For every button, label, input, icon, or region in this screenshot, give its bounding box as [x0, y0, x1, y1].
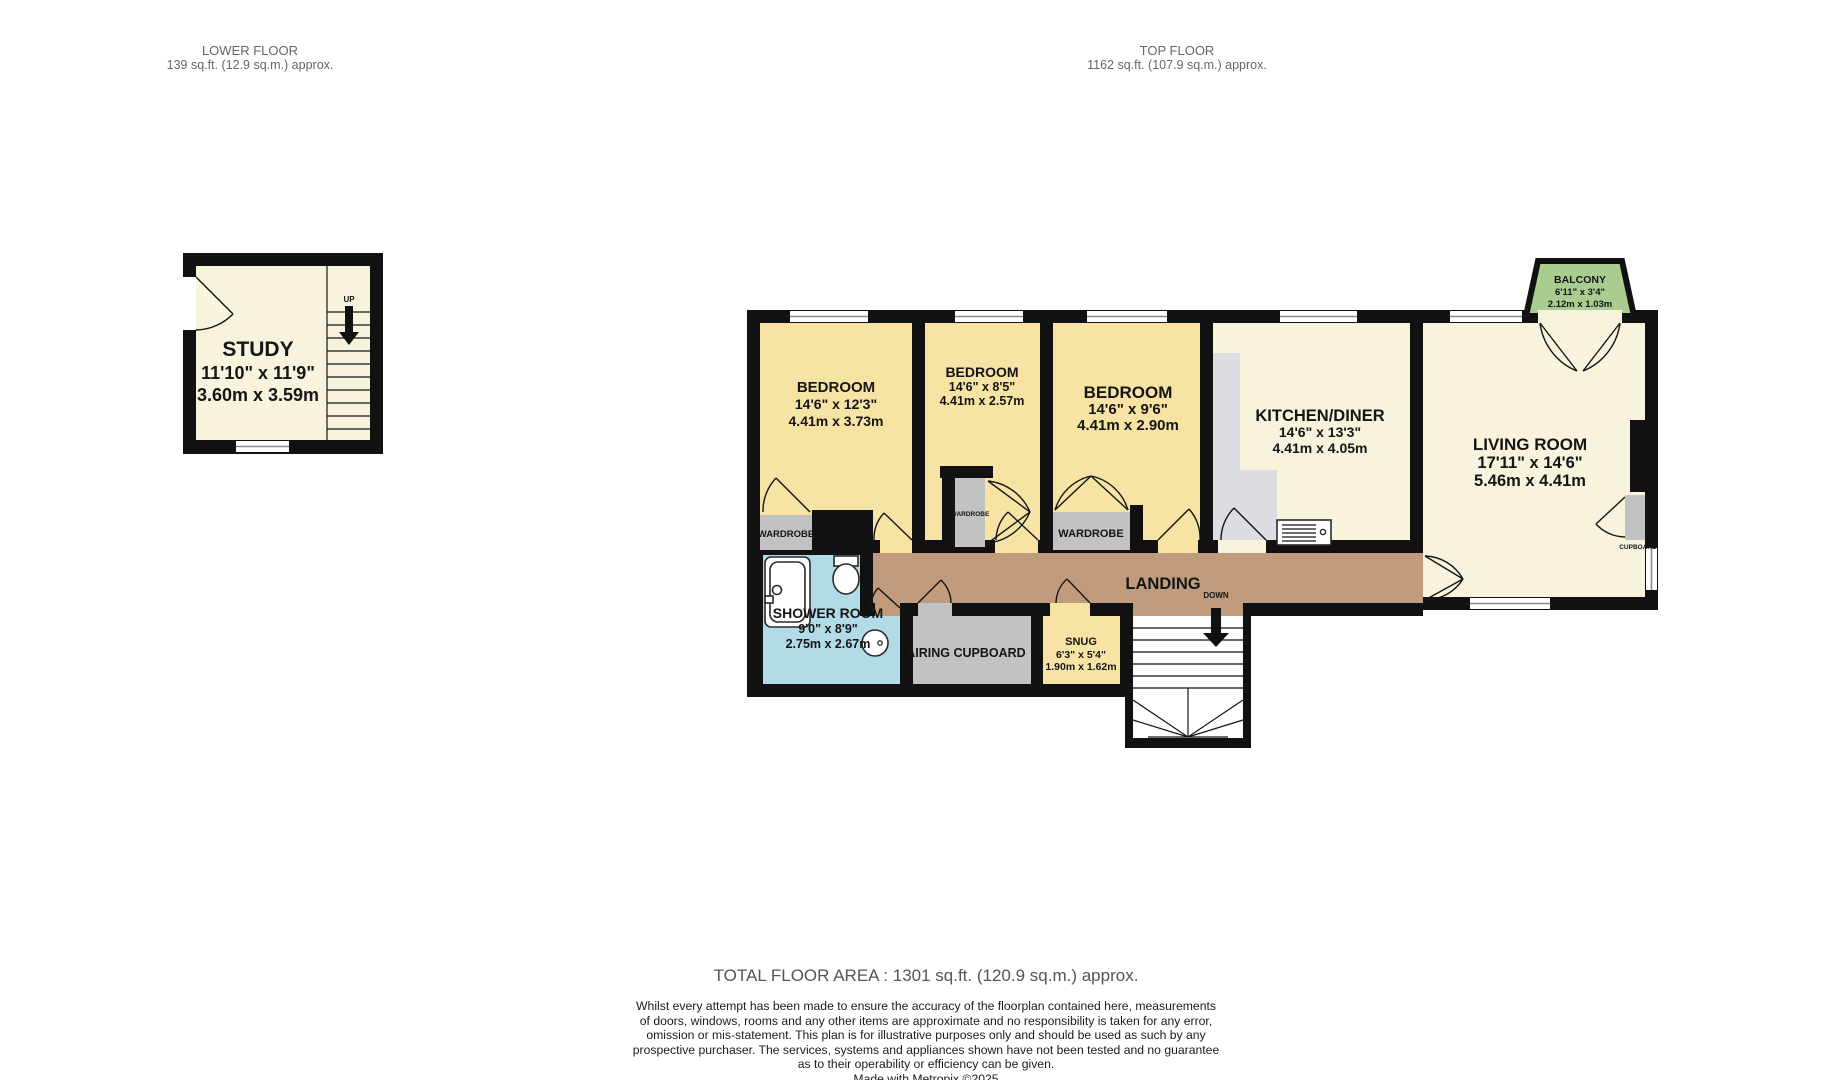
- down-label: DOWN: [1203, 591, 1229, 600]
- bedroom3-dims-metric: 4.41m x 2.90m: [1077, 417, 1179, 434]
- study-door-opening: [183, 277, 196, 330]
- disclaimer-line-3: omission or mis-statement. This plan is …: [555, 1028, 1297, 1043]
- bedroom1-floor: [760, 323, 912, 540]
- living-cupboard-label: CUPBOARD: [1619, 544, 1657, 551]
- study-room: UP STUDY 11'10" x 11'9" 3.60m x 3.59m: [183, 253, 383, 454]
- total-floor-area: TOTAL FLOOR AREA : 1301 sq.ft. (120.9 sq…: [555, 966, 1297, 986]
- bedroom3-wardrobe-label: WARDROBE: [1058, 528, 1123, 540]
- kitchen-sink-unit: [1277, 520, 1331, 545]
- footer: TOTAL FLOOR AREA : 1301 sq.ft. (120.9 sq…: [555, 966, 1297, 1080]
- study-label: STUDY: [222, 338, 293, 361]
- living-top-window: [1450, 311, 1522, 322]
- study-dims-imperial: 11'10" x 11'9": [201, 363, 315, 383]
- bedroom1-window: [790, 311, 868, 322]
- study-dims-metric: 3.60m x 3.59m: [197, 385, 319, 405]
- snug-label: SNUG: [1065, 636, 1097, 648]
- disclaimer-line-4: prospective purchaser. The services, sys…: [555, 1043, 1297, 1058]
- kitchen-window: [1280, 311, 1357, 322]
- floorplan-page: LOWER FLOOR 139 sq.ft. (12.9 sq.m.) appr…: [0, 0, 1847, 1080]
- balcony: BALCONY 6'11" x 3'4" 2.12m x 1.03m: [1526, 261, 1634, 316]
- kitchen-dims-metric: 4.41m x 4.05m: [1273, 440, 1368, 456]
- disclaimer-line-1: Whilst every attempt has been made to en…: [555, 999, 1297, 1014]
- shower-dims-imperial: 9'0" x 8'9": [798, 622, 858, 636]
- bedroom1-dims-imperial: 14'6" x 12'3": [795, 396, 877, 412]
- bedroom3-label: BEDROOM: [1084, 383, 1173, 402]
- kitchen-label: KITCHEN/DINER: [1255, 407, 1384, 425]
- study-up-label: UP: [343, 295, 355, 304]
- shower-label: SHOWER ROOM: [773, 605, 883, 621]
- bedroom2-dims-imperial: 14'6" x 8'5": [949, 380, 1016, 394]
- living-cupboard: [1625, 495, 1645, 540]
- living-right-window: [1646, 548, 1657, 590]
- snug-dims-metric: 1.90m x 1.62m: [1045, 661, 1116, 673]
- bedroom1-label: BEDROOM: [797, 379, 875, 396]
- living-dims-metric: 5.46m x 4.41m: [1474, 472, 1586, 490]
- living-bottom-window: [1470, 598, 1550, 609]
- shower-dims-metric: 2.75m x 2.67m: [786, 637, 871, 651]
- bedroom1-dims-metric: 4.41m x 3.73m: [789, 413, 884, 429]
- credit-line: Made with Metropix ©2025: [555, 1072, 1297, 1080]
- landing-label: LANDING: [1125, 575, 1200, 593]
- study-window: [236, 441, 289, 452]
- bedroom1-wardrobe-label: WARDROBE: [758, 529, 814, 540]
- living-chimney: [1630, 420, 1658, 492]
- snug-dims-imperial: 6'3" x 5'4": [1056, 649, 1106, 661]
- bedroom2-window: [955, 311, 1023, 322]
- bedroom3-dims-imperial: 14'6" x 9'6": [1088, 401, 1168, 418]
- airing-cupboard-label: AIRING CUPBOARD: [906, 646, 1025, 660]
- down-arrow: [1211, 608, 1221, 633]
- bedroom1-chimney: [812, 510, 873, 550]
- kitchen-dims-imperial: 14'6" x 13'3": [1279, 424, 1361, 440]
- bedroom2-wardrobe-label: WARDROBE: [951, 511, 990, 518]
- living-dims-imperial: 17'11" x 14'6": [1477, 454, 1582, 472]
- study-stairs-arrow: [345, 306, 353, 332]
- bedroom2-dims-metric: 4.41m x 2.57m: [940, 394, 1025, 408]
- living-label: LIVING ROOM: [1473, 435, 1587, 454]
- bedroom3-window: [1087, 311, 1167, 322]
- balcony-dims-metric: 2.12m x 1.03m: [1548, 299, 1612, 310]
- disclaimer-line-5: as to their operability or efficiency ca…: [555, 1057, 1297, 1072]
- disclaimer-line-2: of doors, windows, rooms and any other i…: [555, 1014, 1297, 1029]
- bedroom2-label: BEDROOM: [945, 364, 1018, 380]
- balcony-label: BALCONY: [1554, 274, 1606, 286]
- floorplan-drawing: UP STUDY 11'10" x 11'9" 3.60m x 3.59m BA: [0, 0, 1847, 1080]
- balcony-dims-imperial: 6'11" x 3'4": [1555, 287, 1605, 298]
- toilet: [833, 556, 859, 594]
